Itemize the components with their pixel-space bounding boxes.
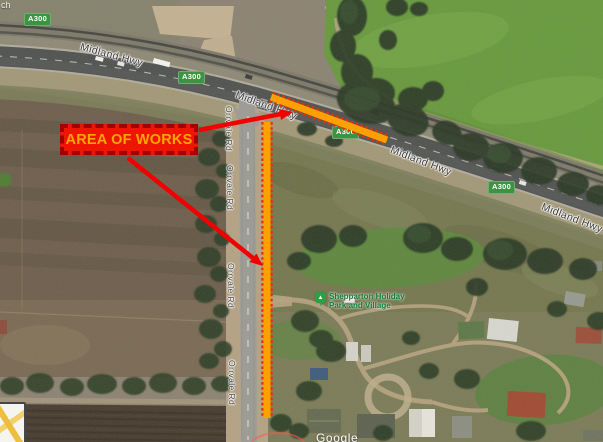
map-inset-thumbnail[interactable] <box>0 402 26 442</box>
satellite-map-image[interactable] <box>0 0 603 442</box>
satellite-grain <box>0 0 603 442</box>
inset-roads <box>0 404 24 442</box>
annotated-map-figure: A300 A300 A300 A300 Midland Hwy Midland … <box>0 0 603 442</box>
